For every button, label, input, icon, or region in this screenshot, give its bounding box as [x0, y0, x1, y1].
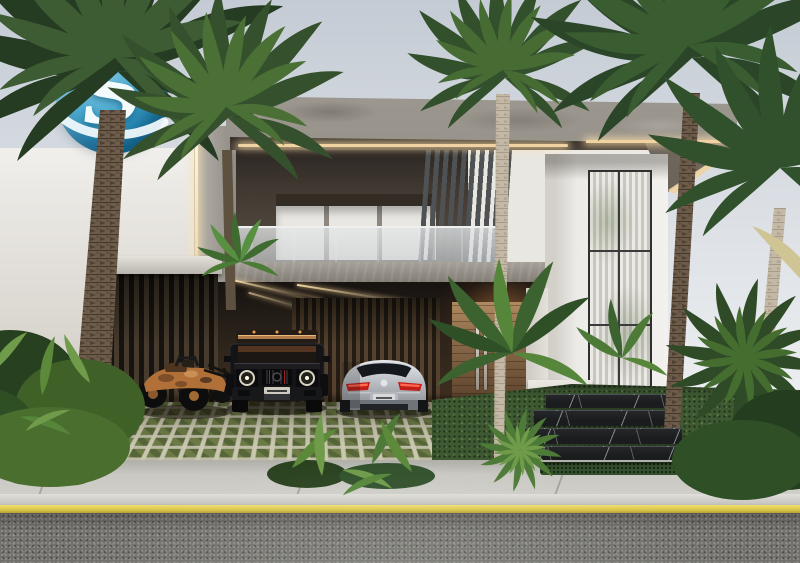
asphalt-road [0, 513, 800, 563]
window-plant [574, 298, 669, 376]
palms-right [552, 0, 800, 506]
cycad-small [478, 408, 563, 493]
palms-left [0, 0, 340, 510]
architectural-render: S [0, 0, 800, 563]
balcony-potted-plant [210, 192, 276, 268]
left-shrubs [0, 329, 145, 487]
